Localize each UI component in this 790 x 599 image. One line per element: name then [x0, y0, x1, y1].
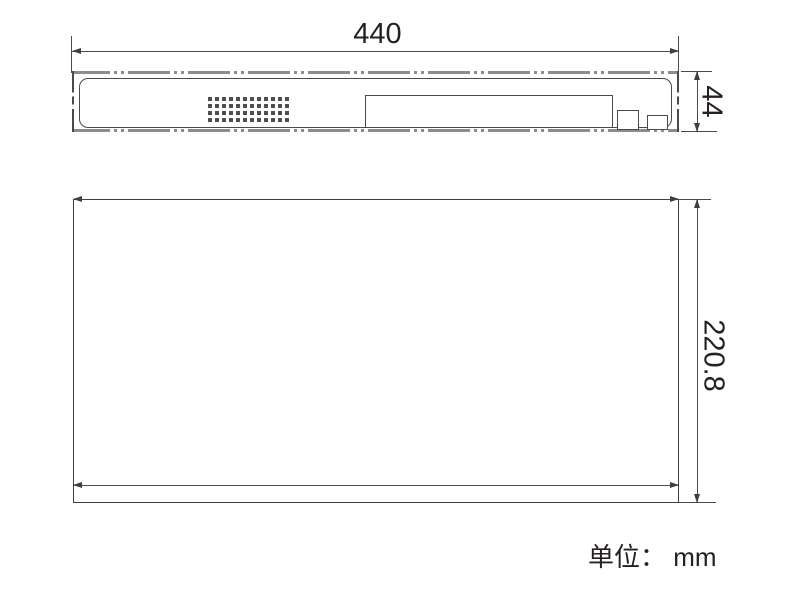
vent-hole [229, 118, 233, 122]
vent-hole [278, 118, 282, 122]
vent-hole [285, 97, 289, 101]
vent-hole [271, 118, 275, 122]
topview-top-arrow-left [73, 196, 82, 202]
vent-hole [208, 104, 212, 108]
vent-hole [236, 97, 240, 101]
dim-440-extension-right [678, 36, 679, 73]
vent-hole [250, 118, 254, 122]
vent-hole [257, 111, 261, 115]
vent-hole [222, 118, 226, 122]
panel-bottom-edge [72, 129, 679, 132]
vent-hole [215, 111, 219, 115]
vent-hole [215, 104, 219, 108]
vent-hole [285, 104, 289, 108]
vent-hole [229, 104, 233, 108]
vent-hole [208, 97, 212, 101]
dim-440-arrow-right [670, 48, 679, 54]
dim-2208-arrow-bottom [694, 494, 700, 503]
vent-hole [215, 118, 219, 122]
dim-2208-label: 220.8 [699, 317, 728, 395]
dim-440-extension-left [71, 36, 72, 73]
vent-hole [271, 104, 275, 108]
topview-inner-arrow-right [670, 482, 679, 488]
vent-hole [236, 111, 240, 115]
vent-hole [264, 111, 268, 115]
vent-hole [278, 111, 282, 115]
topview-inner-dim-line [73, 485, 679, 486]
dim-440-arrow-left [72, 48, 81, 54]
dim-2208-arrow-top [694, 199, 700, 208]
vent-hole [236, 104, 240, 108]
dim-44-arrow-top [694, 71, 700, 80]
panel-square-small [647, 115, 668, 130]
panel-top-edge [72, 71, 679, 74]
vent-hole [278, 97, 282, 101]
dim-440-label: 440 [340, 20, 415, 49]
vent-hole [243, 97, 247, 101]
vent-hole [285, 111, 289, 115]
vent-hole [243, 118, 247, 122]
vent-hole [271, 97, 275, 101]
vent-hole [257, 97, 261, 101]
panel-square-large [617, 110, 639, 130]
vent-hole [278, 104, 282, 108]
vent-hole [264, 97, 268, 101]
vent-hole [285, 118, 289, 122]
panel-right-edge [677, 71, 679, 132]
vent-hole [243, 104, 247, 108]
vent-hole [264, 118, 268, 122]
vent-hole [229, 97, 233, 101]
topview-inner-arrow-left [73, 482, 82, 488]
vent-hole [264, 104, 268, 108]
vent-hole [271, 111, 275, 115]
topview-top-arrow-right [670, 196, 679, 202]
dim-44-label: 44 [697, 85, 726, 117]
panel-left-edge [72, 71, 74, 132]
vent-hole [243, 111, 247, 115]
top-view-outline [73, 199, 679, 503]
vent-hole [208, 111, 212, 115]
vent-hole [215, 97, 219, 101]
dim-44-arrow-bottom [694, 123, 700, 132]
vent-grid [208, 97, 289, 122]
unit-note: 单位： mm [588, 537, 717, 574]
vent-hole [208, 118, 212, 122]
vent-hole [222, 111, 226, 115]
vent-hole [236, 118, 240, 122]
vent-hole [257, 104, 261, 108]
dim-440-line [72, 51, 679, 52]
drawing-sheet: 440 44 220.8 单位： mm [0, 0, 790, 599]
display-window [365, 95, 613, 128]
vent-hole [250, 97, 254, 101]
front-panel [72, 71, 679, 132]
vent-hole [229, 111, 233, 115]
vent-hole [222, 97, 226, 101]
vent-hole [222, 104, 226, 108]
vent-hole [250, 104, 254, 108]
vent-hole [250, 111, 254, 115]
vent-hole [257, 118, 261, 122]
front-panel-face [79, 78, 672, 128]
